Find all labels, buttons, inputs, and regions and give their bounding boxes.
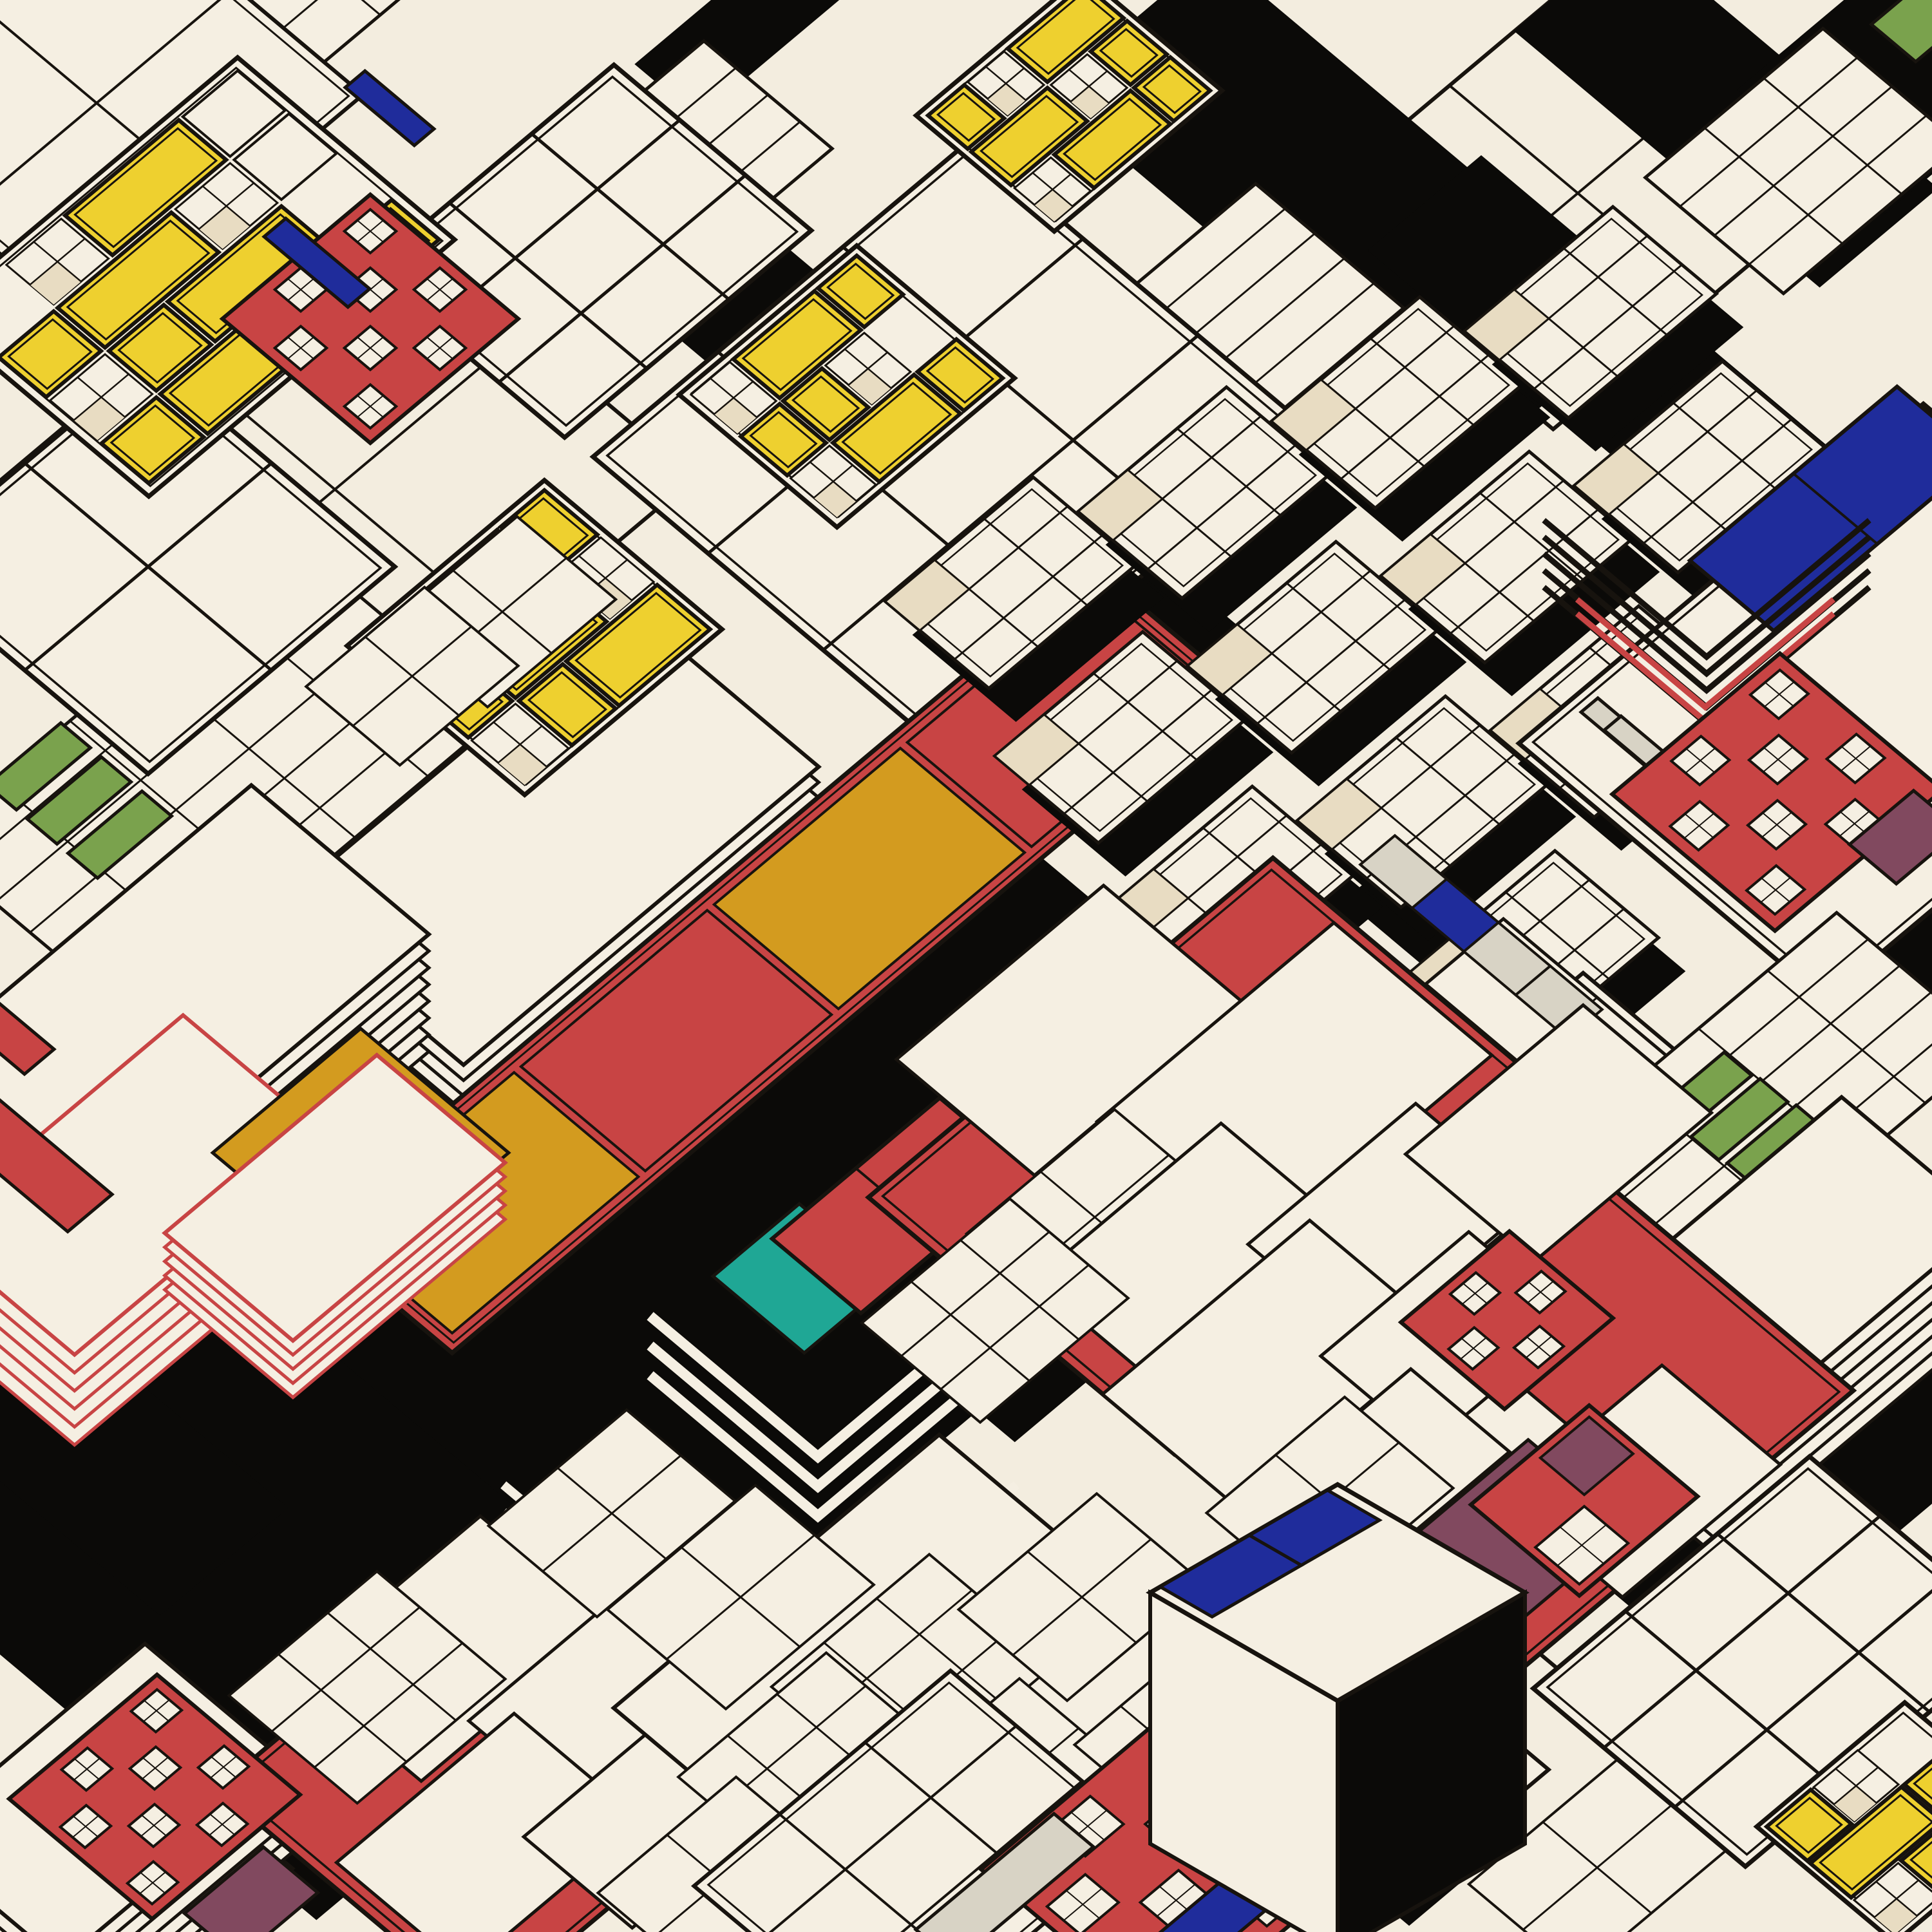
blue-bar-a <box>345 71 434 146</box>
generative-artwork-canvas <box>0 0 1932 1932</box>
